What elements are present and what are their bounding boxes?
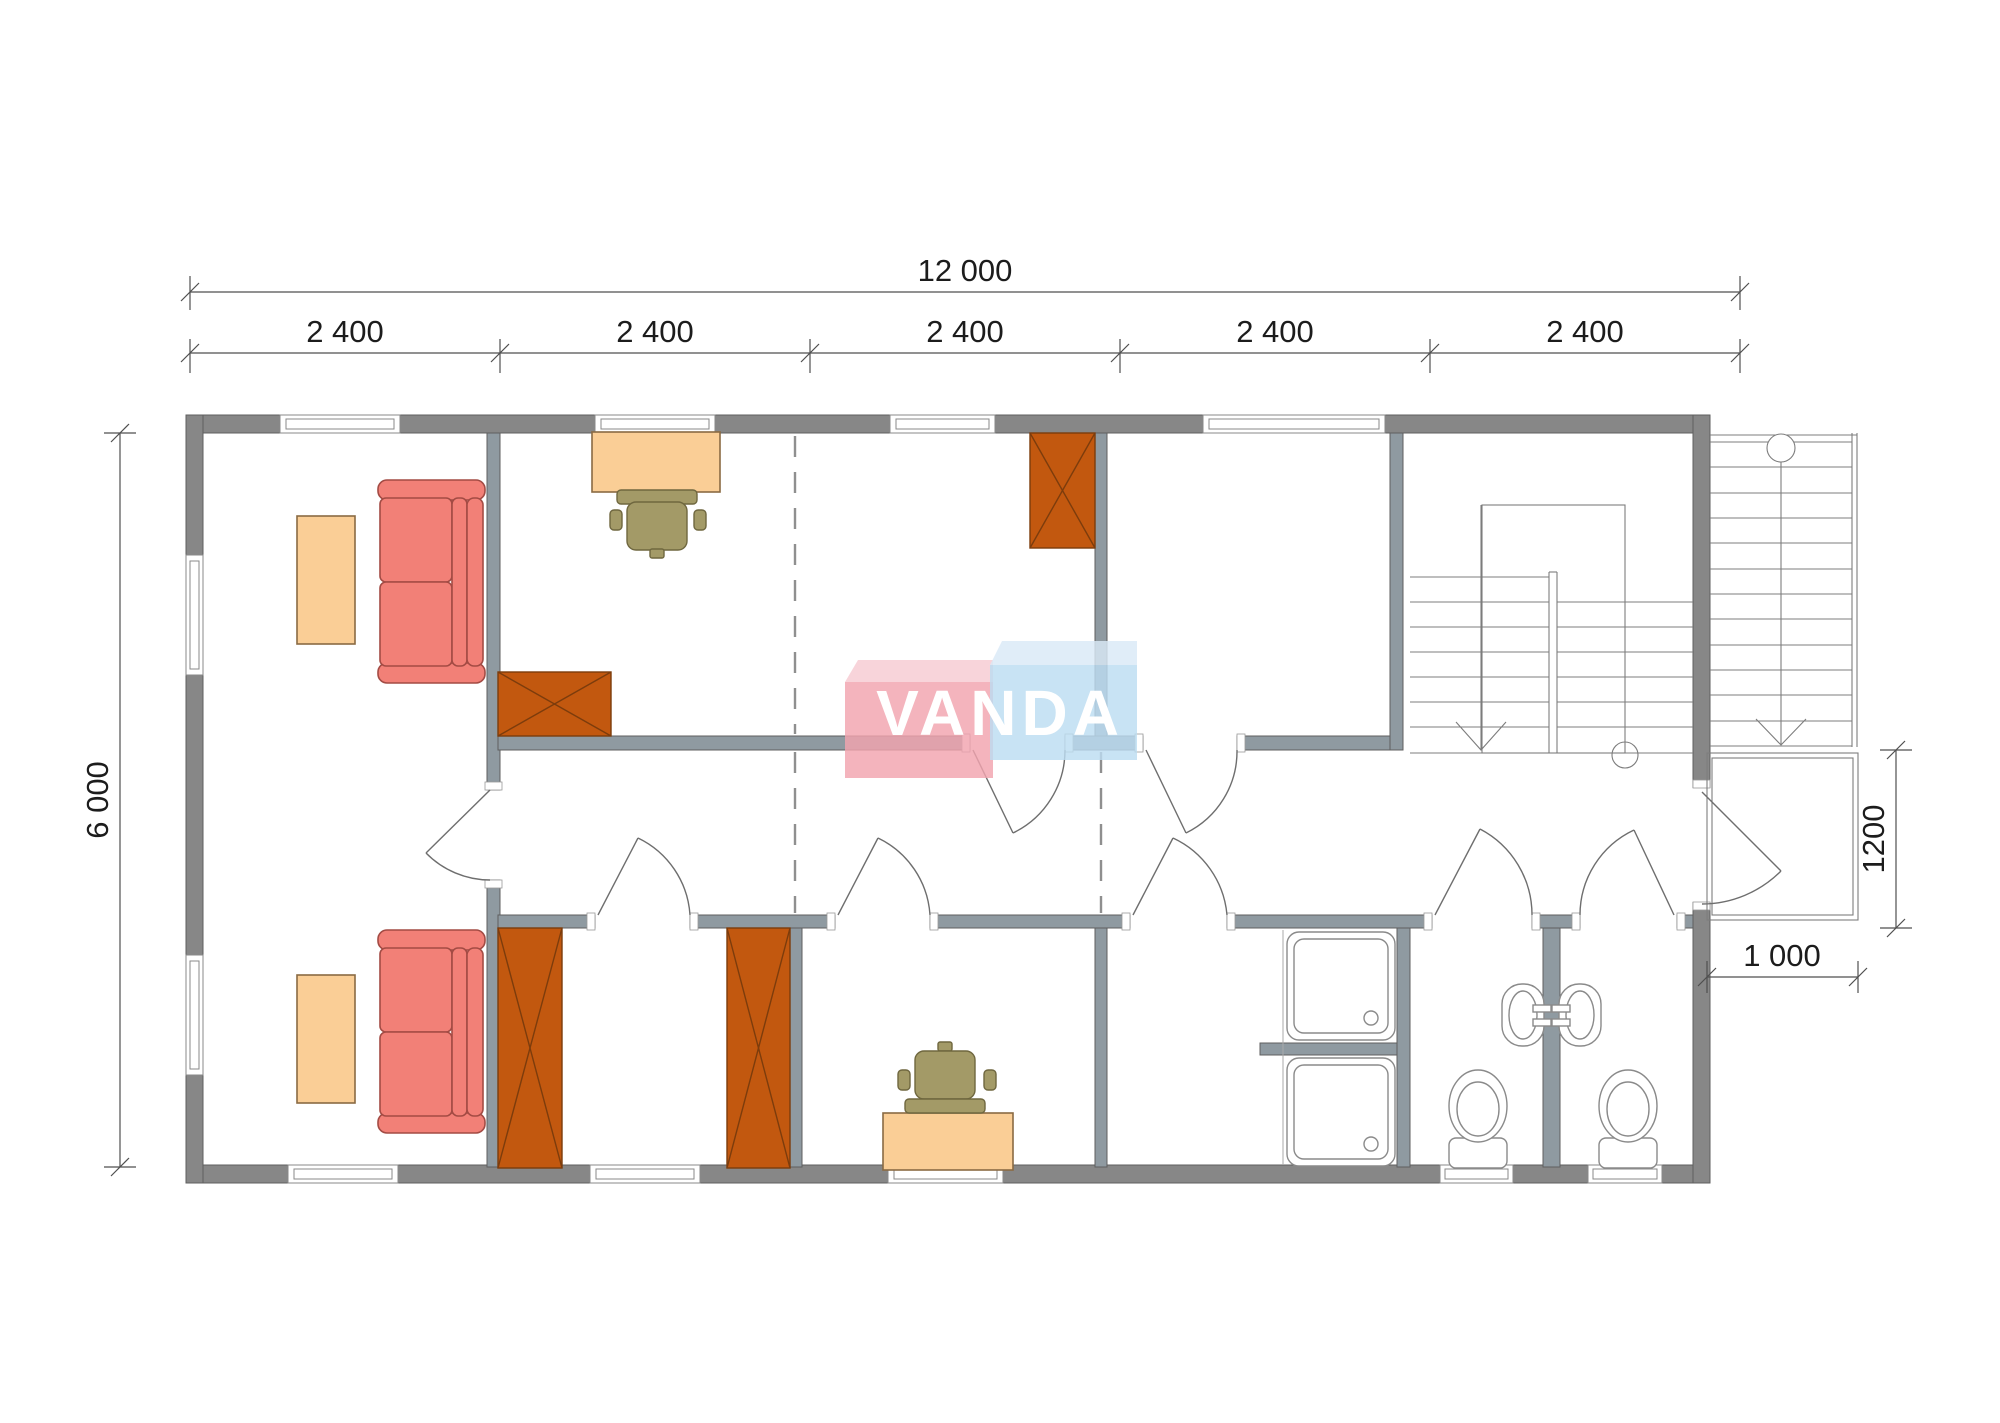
window-top-3 [890, 415, 995, 433]
wardrobe-bottom-right [727, 928, 790, 1168]
desk-bottom [883, 1113, 1013, 1170]
shower-tray-1 [1287, 932, 1395, 1040]
window-top-4 [1203, 415, 1385, 433]
dimension-overall-width: 12 000 [181, 253, 1749, 310]
window-left-1 [186, 555, 203, 675]
dimension-porch-width: 1 000 [1698, 938, 1867, 993]
door-wc-1 [1435, 829, 1532, 915]
office-chair-top [610, 490, 706, 558]
wardrobe-mid-room [1030, 433, 1095, 548]
label-bay-3: 2 400 [926, 314, 1004, 349]
door-wc-2 [1580, 830, 1674, 915]
exterior-stair [1710, 433, 1857, 747]
door-room-bottom-left [598, 838, 690, 915]
desk-top [592, 432, 720, 492]
label-bay-2: 2 400 [616, 314, 694, 349]
coffee-table-2 [297, 975, 355, 1103]
window-top-1 [280, 415, 400, 433]
door-entrance [1702, 792, 1781, 904]
label-porch-depth: 1200 [1856, 805, 1891, 874]
sofa-1 [378, 480, 485, 683]
entrance-door-opening [1692, 788, 1711, 902]
interior-stair [1410, 505, 1693, 768]
coffee-table-1 [297, 516, 355, 644]
door-shower-room [1133, 838, 1227, 915]
window-top-2 [595, 415, 715, 433]
office-chair-bottom [898, 1042, 996, 1113]
door-living-room [426, 790, 490, 880]
window-bottom-1 [288, 1165, 398, 1183]
wardrobe-bottom-left [498, 928, 562, 1168]
sofa-2 [378, 930, 485, 1133]
label-overall-depth: 6 000 [80, 761, 115, 839]
door-room-top-right [1146, 750, 1237, 833]
door-jambs [485, 734, 1710, 930]
porch [1707, 753, 1858, 920]
label-overall-width: 12 000 [918, 253, 1013, 288]
window-bottom-2 [590, 1165, 700, 1183]
watermark-text: VANDA [876, 677, 1124, 749]
door-room-bottom-mid [838, 838, 930, 915]
toilet-2 [1599, 1070, 1657, 1168]
label-porch-width: 1 000 [1743, 938, 1821, 973]
toilet-1 [1449, 1070, 1507, 1168]
label-bay-5: 2 400 [1546, 314, 1624, 349]
shower-tray-2 [1287, 1058, 1395, 1166]
dimension-overall-depth: 6 000 [80, 424, 136, 1176]
label-bay-1: 2 400 [306, 314, 384, 349]
doors [426, 750, 1781, 915]
floor-plan-drawing: 12 000 2 400 2 400 2 400 2 400 2 400 6 0… [0, 0, 2000, 1423]
dimension-porch-depth: 1200 [1856, 741, 1912, 937]
vanda-watermark: VANDA [845, 641, 1137, 778]
window-left-2 [186, 955, 203, 1075]
dimension-bays: 2 400 2 400 2 400 2 400 2 400 [181, 314, 1749, 373]
floor-plan-canvas: 12 000 2 400 2 400 2 400 2 400 2 400 6 0… [0, 0, 2000, 1423]
wardrobe-office [498, 672, 611, 736]
label-bay-4: 2 400 [1236, 314, 1314, 349]
